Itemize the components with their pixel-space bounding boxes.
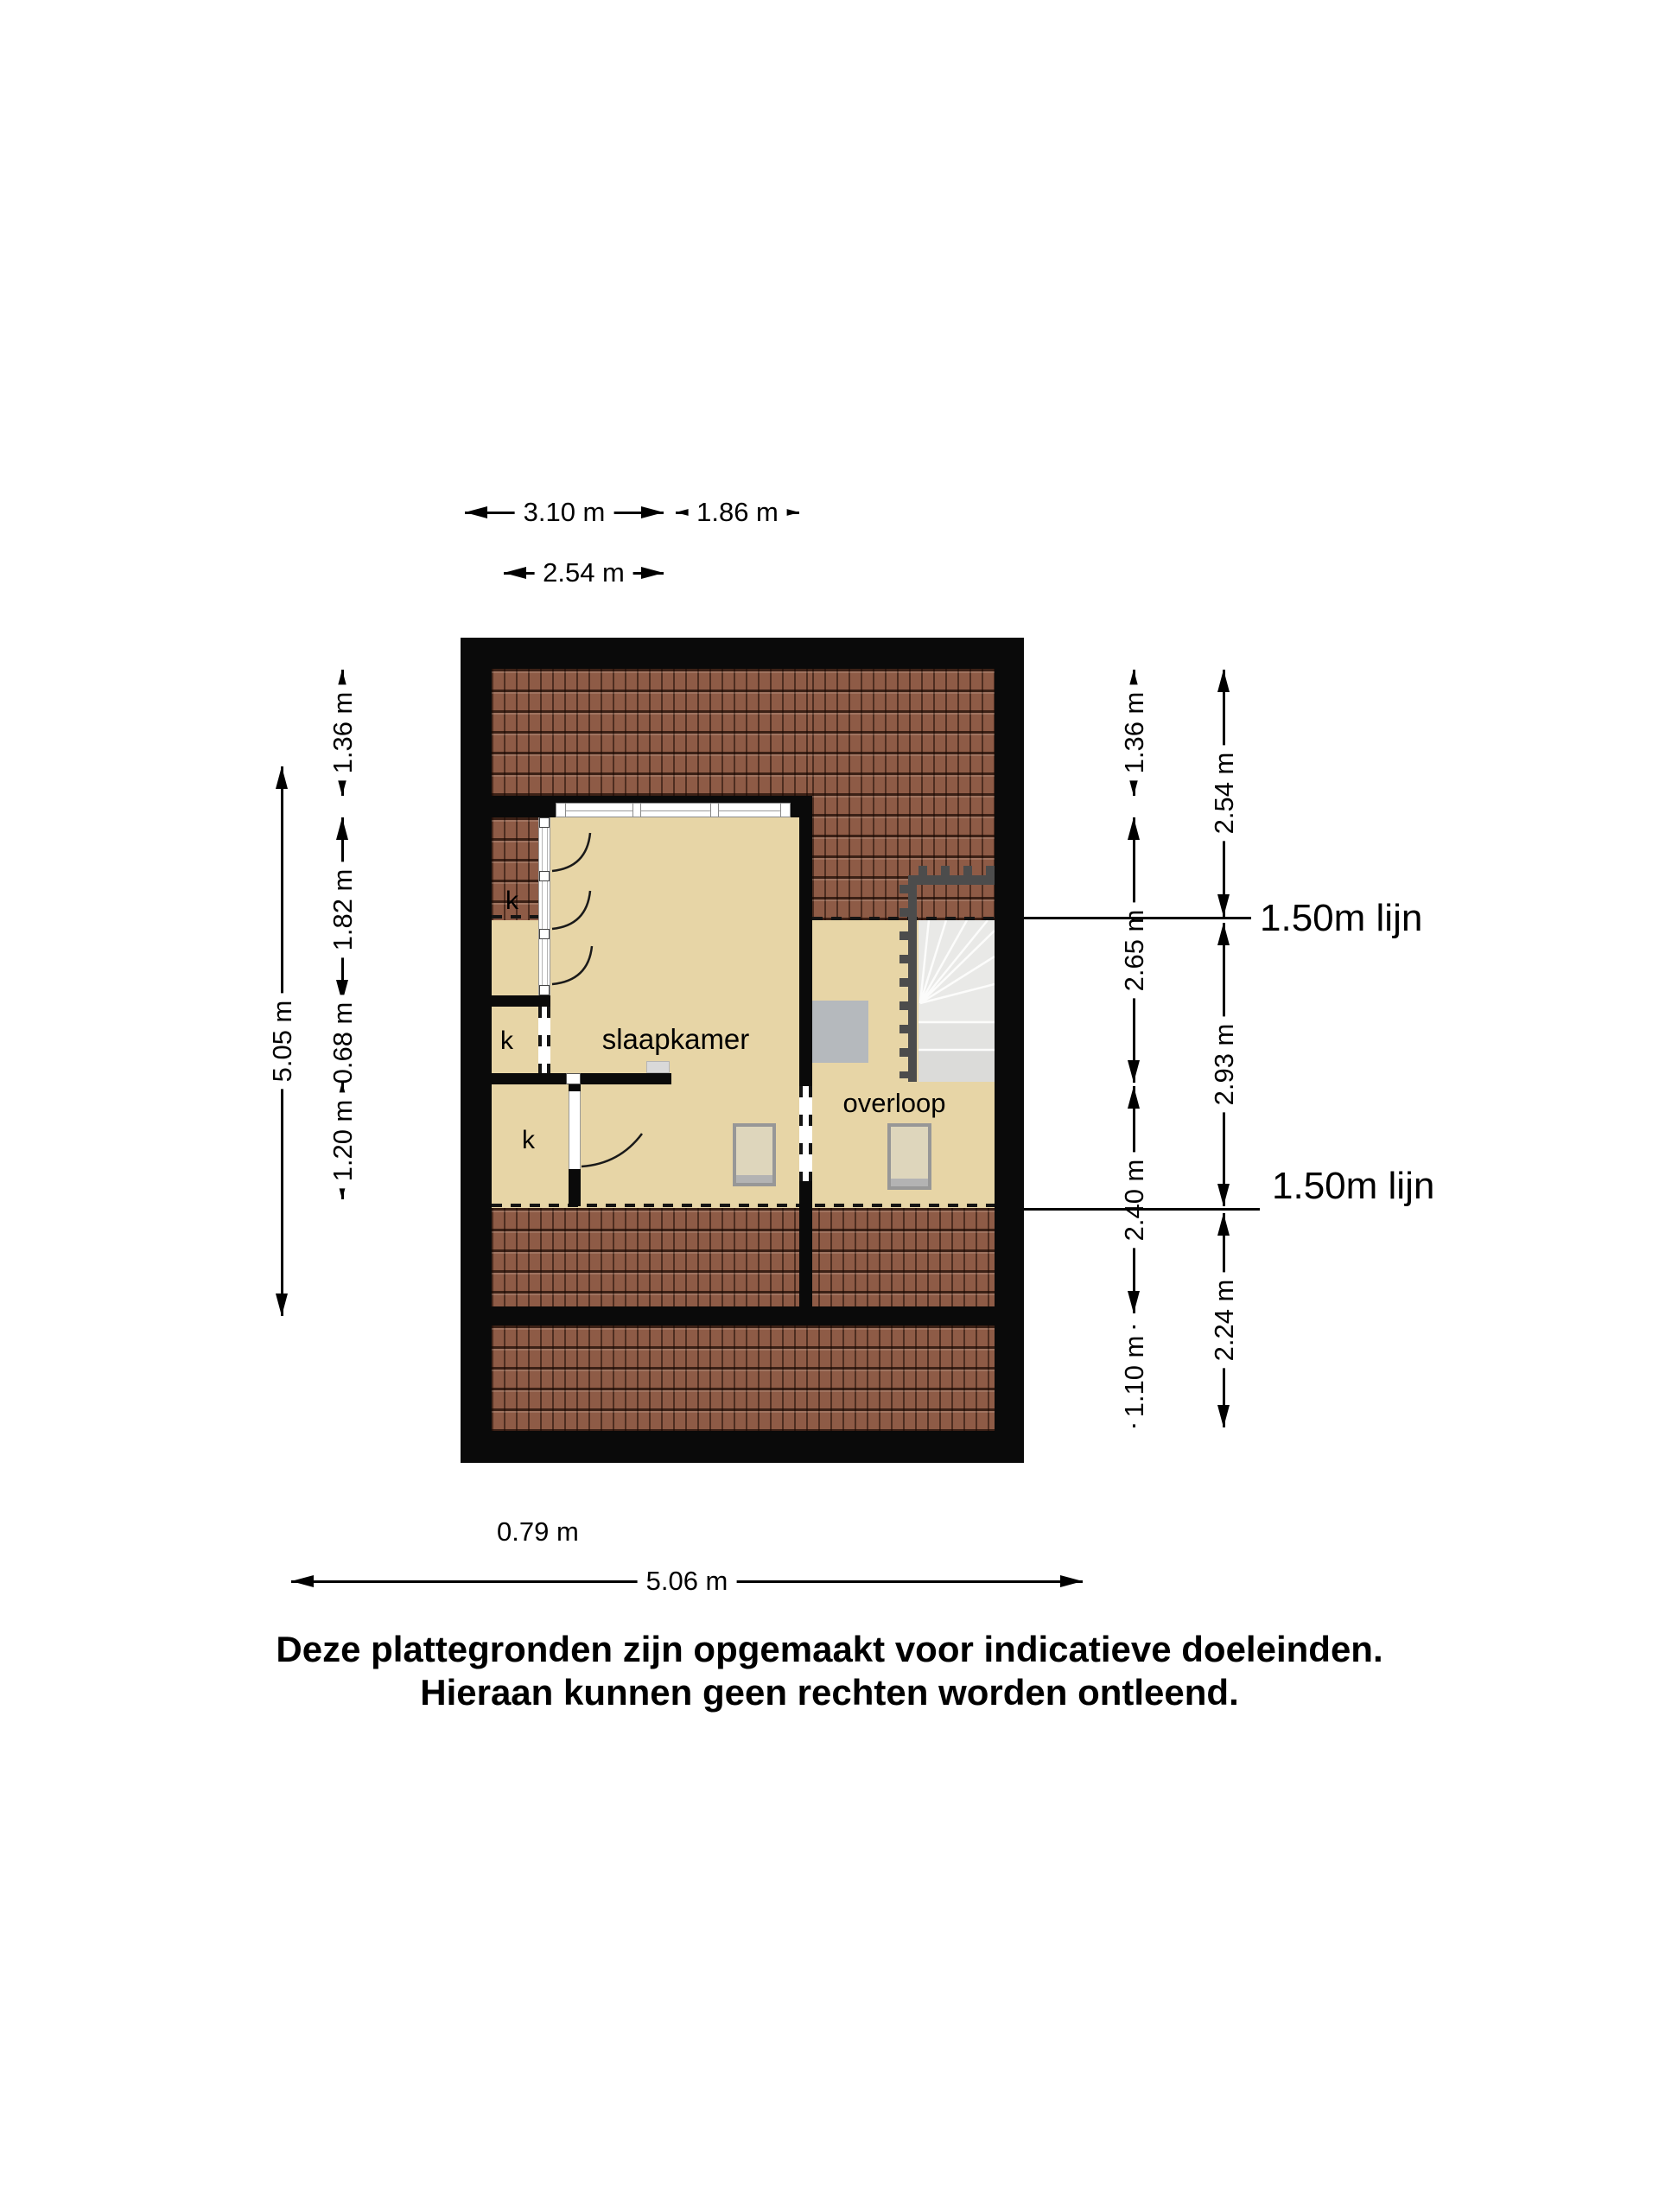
dimension-right-136: 1.36 m: [1124, 670, 1145, 796]
arrow-up-icon: [276, 766, 288, 789]
dimension-label: 5.06 m: [638, 1566, 737, 1597]
level-line-2: [1024, 1208, 1260, 1211]
arrow-down-icon: [276, 1294, 288, 1316]
dimension-label: 3.10 m: [515, 497, 614, 528]
arrow-left-icon: [291, 1575, 314, 1587]
arrow-down-icon: [1217, 894, 1230, 917]
dimension-top-186: 1.86 m: [676, 502, 799, 523]
dimension-label: 0.68 m: [327, 995, 359, 1090]
arrow-right-icon: [641, 506, 664, 518]
dimension-label: 1.10 m: [1119, 1329, 1150, 1425]
arrow-up-icon: [1217, 1213, 1230, 1236]
dimension-label: 1.20 m: [327, 1093, 359, 1189]
closet-label-3: k: [522, 1126, 535, 1155]
dimension-bottom-506: 5.06 m: [291, 1571, 1083, 1592]
closet-label-1: k: [505, 887, 518, 916]
dimension-left-182: 1.82 m: [333, 817, 353, 1002]
dimension-label: 2.54 m: [1209, 746, 1240, 842]
dimension-top-254: 2.54 m: [504, 563, 664, 583]
dimension-right-265: 2.65 m: [1124, 817, 1145, 1083]
dimension-left-136: 1.36 m: [333, 670, 353, 796]
dimension-right-110: 1.10 m: [1124, 1325, 1145, 1427]
disclaimer-line-1: Deze plattegronden zijn opgemaakt voor i…: [0, 1628, 1659, 1671]
dimension-label: 5.05 m: [267, 994, 298, 1090]
arrow-up-icon: [1217, 670, 1230, 692]
dimension-right-293: 2.93 m: [1214, 923, 1235, 1206]
arrow-down-icon: [1128, 1060, 1140, 1083]
level-line-2-label: 1.50m lijn: [1272, 1165, 1434, 1208]
closet-label-2: k: [500, 1027, 513, 1056]
dimension-label: 1.36 m: [1119, 685, 1150, 781]
dimension-label: 2.54 m: [534, 557, 633, 588]
arrow-left-icon: [465, 506, 487, 518]
dimension-bottom-079: 0.79 m: [497, 1516, 579, 1548]
floor-plan: slaapkamer overloop k k k: [461, 638, 1024, 1463]
dimension-right-240: 2.40 m: [1124, 1086, 1145, 1313]
room-label-landing: overloop: [817, 1088, 972, 1119]
arrow-up-icon: [336, 817, 348, 840]
dimension-label: 2.40 m: [1119, 1152, 1150, 1248]
disclaimer-line-2: Hieraan kunnen geen rechten worden ontle…: [0, 1671, 1659, 1714]
level-line-1-label: 1.50m lijn: [1260, 897, 1422, 940]
dimension-left-505: 5.05 m: [272, 766, 293, 1316]
arrow-down-icon: [1217, 1405, 1230, 1427]
arrow-down-icon: [1128, 1291, 1140, 1313]
dimension-label: 1.86 m: [688, 497, 787, 528]
arrow-up-icon: [1217, 923, 1230, 945]
dimension-left-068: 0.68 m: [333, 1007, 353, 1078]
dimension-right-224: 2.24 m: [1214, 1213, 1235, 1427]
arrow-left-icon: [504, 567, 526, 579]
dimension-label: 2.93 m: [1209, 1017, 1240, 1113]
level-line-1: [1024, 917, 1251, 919]
dimension-top-310: 3.10 m: [465, 502, 664, 523]
dimension-label: 1.82 m: [327, 862, 359, 958]
dimension-label: 1.36 m: [327, 685, 359, 781]
arrow-right-icon: [641, 567, 664, 579]
disclaimer: Deze plattegronden zijn opgemaakt voor i…: [0, 1628, 1659, 1714]
arrow-up-icon: [1128, 1086, 1140, 1109]
dimension-right-254: 2.54 m: [1214, 670, 1235, 917]
dimension-label: 2.24 m: [1209, 1273, 1240, 1369]
dimension-left-120: 1.20 m: [333, 1082, 353, 1199]
arrow-up-icon: [1128, 817, 1140, 840]
arrow-right-icon: [1060, 1575, 1083, 1587]
room-label-bedroom: slaapkamer: [581, 1023, 771, 1056]
arrow-down-icon: [1217, 1184, 1230, 1206]
